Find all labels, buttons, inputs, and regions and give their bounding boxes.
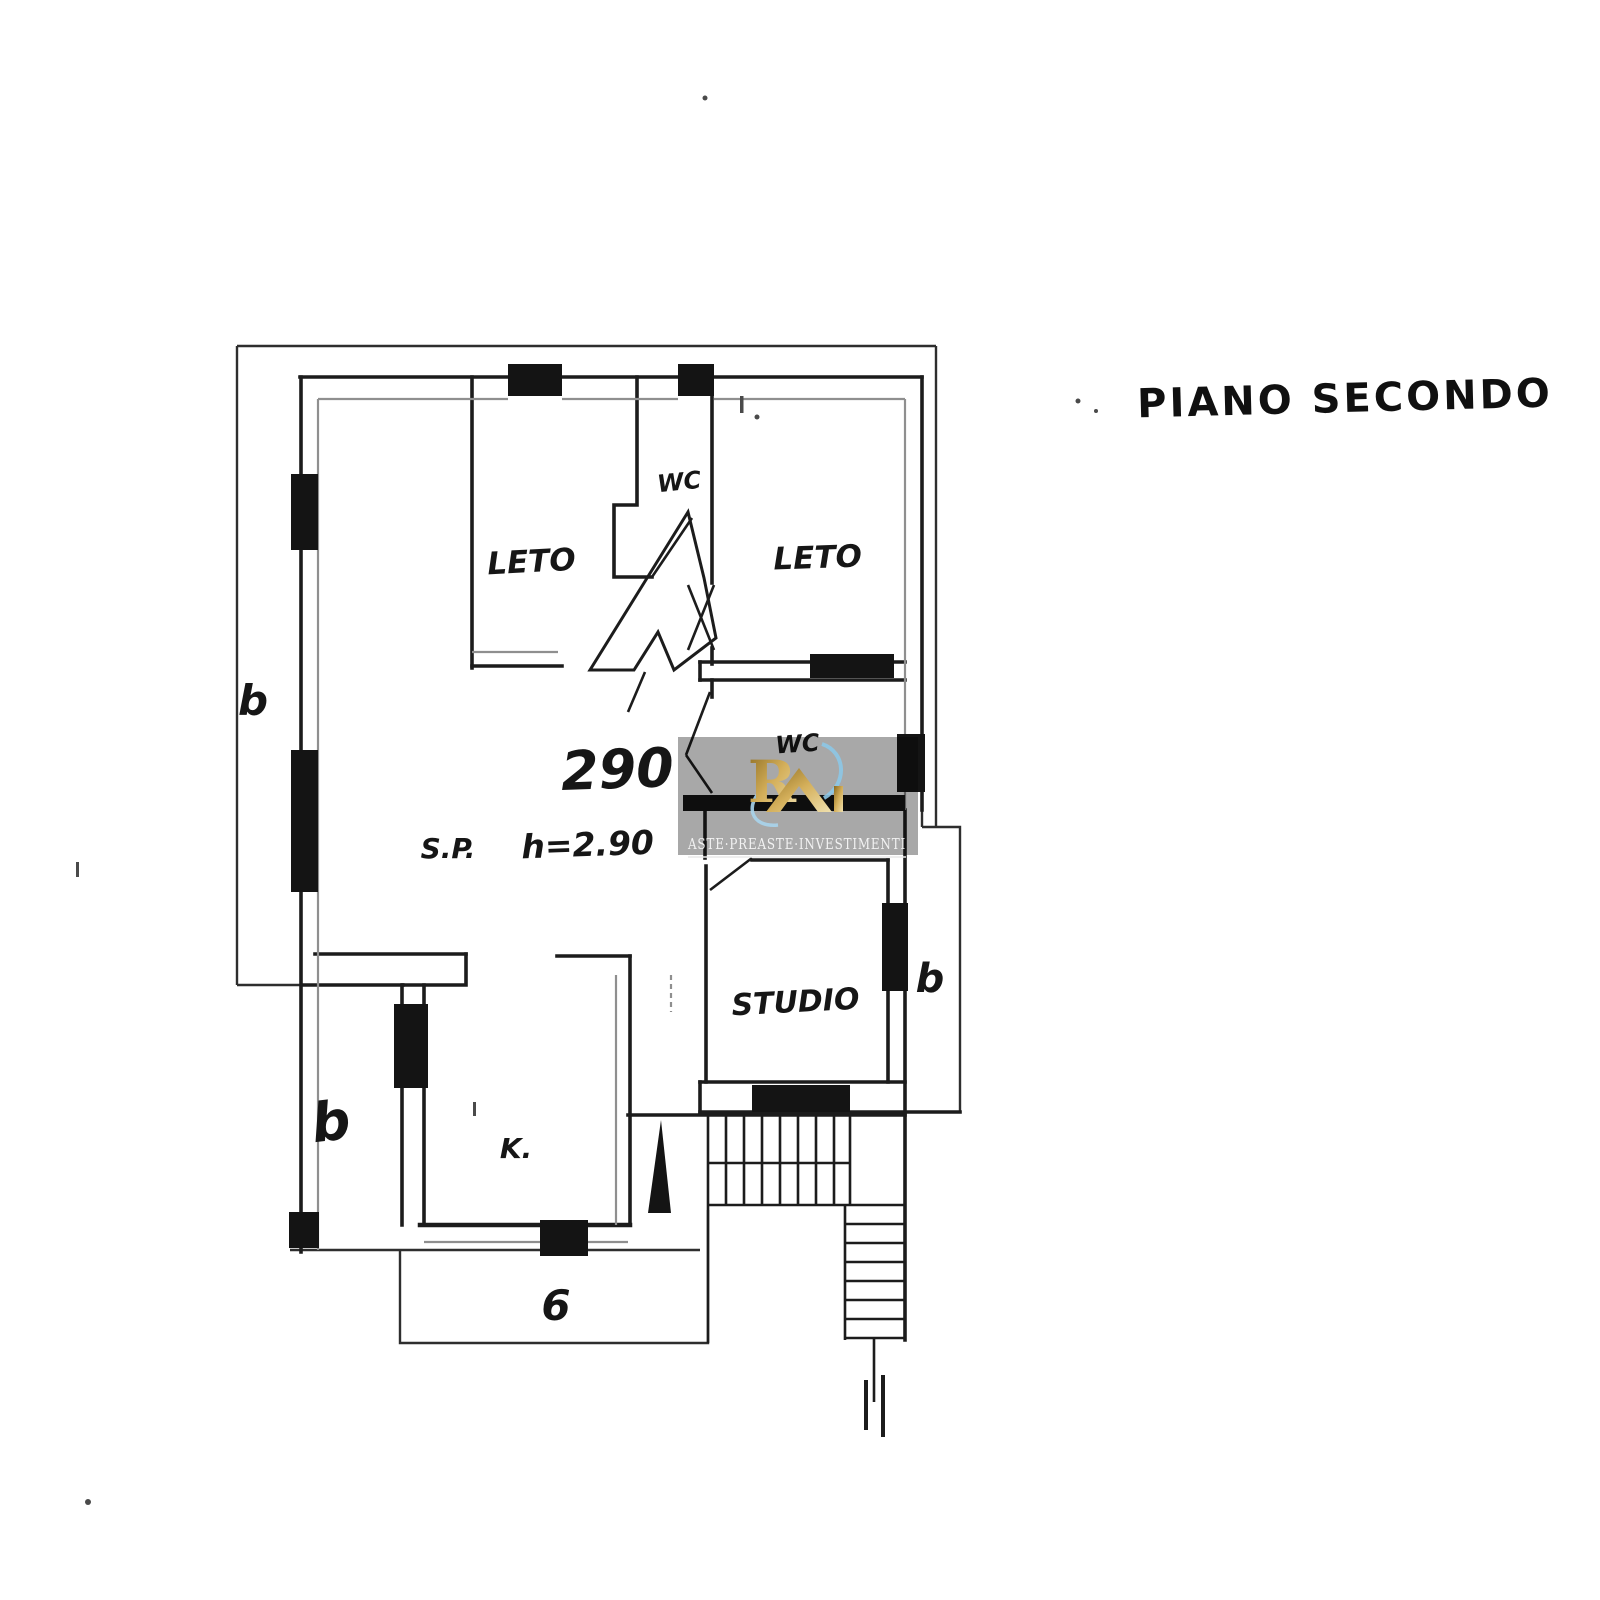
mark-dot-title-b bbox=[1094, 409, 1098, 413]
annotation-balcony-lower-left: b bbox=[308, 1088, 354, 1155]
stairs bbox=[708, 1115, 905, 1437]
window-left-lower bbox=[291, 750, 318, 892]
door-studio bbox=[710, 858, 752, 890]
annotation-sp: S.P. bbox=[421, 832, 476, 865]
door-leaf-entrance bbox=[648, 1120, 671, 1213]
mark-tick-left bbox=[76, 862, 79, 877]
mark-tick-kitchen bbox=[473, 1102, 476, 1116]
annotation-balcony-right: b bbox=[916, 956, 945, 1002]
mark-tick-letto-right bbox=[740, 396, 744, 413]
window-left-corner bbox=[289, 1212, 319, 1248]
room-label-kitchen: K. bbox=[500, 1132, 532, 1165]
window-studio-right bbox=[882, 903, 908, 991]
annotation-height: h=2.90 bbox=[521, 823, 655, 867]
mark-dot-letto-right bbox=[755, 415, 760, 420]
stair-treads-vertical-flight bbox=[845, 1224, 905, 1338]
mark-dot-title-a bbox=[1076, 399, 1081, 404]
window-top-right bbox=[678, 364, 714, 396]
entrance-door-marker bbox=[752, 1085, 850, 1112]
window-left-upper bbox=[291, 474, 318, 550]
room-label-wc-top: WC bbox=[656, 466, 703, 498]
door-tail bbox=[628, 672, 645, 712]
room-label-letto-right: LETO bbox=[773, 538, 863, 577]
annotation-area-number: 290 bbox=[560, 736, 675, 803]
plan-title: PIANO SECONDO bbox=[1137, 371, 1554, 428]
floorplan-svg: LETO WC LETO WC STUDIO K. 290 S.P. h=2.9… bbox=[0, 0, 1600, 1600]
annotation-balcony-left: b bbox=[238, 676, 268, 725]
wall-sp-bottom-cap bbox=[403, 954, 466, 985]
mark-dot-top bbox=[703, 96, 708, 101]
window-kitchen-bottom bbox=[540, 1220, 588, 1256]
door-arrow-hall bbox=[590, 512, 716, 670]
window-kitchen-left bbox=[394, 1004, 428, 1088]
logo-i-bar bbox=[834, 786, 843, 812]
window-top-left bbox=[508, 364, 562, 396]
annotation-balcony-bottom: 6 bbox=[541, 1281, 570, 1330]
room-label-studio: STUDIO bbox=[731, 982, 861, 1024]
stair-treads-horizontal-flight bbox=[726, 1115, 850, 1205]
wall-wc-top bbox=[614, 377, 652, 577]
room-label-letto-left: LETO bbox=[486, 542, 576, 583]
watermark: R ASTE·PREASTE·INVESTIMENTI bbox=[678, 737, 918, 857]
window-letto-right-bottom bbox=[810, 654, 894, 678]
watermark-text: ASTE·PREASTE·INVESTIMENTI bbox=[687, 837, 906, 853]
mark-dot-bottom-left bbox=[85, 1499, 91, 1505]
scanned-floorplan-page: LETO WC LETO WC STUDIO K. 290 S.P. h=2.9… bbox=[0, 0, 1600, 1600]
door-leaf-wc-top bbox=[652, 518, 692, 577]
